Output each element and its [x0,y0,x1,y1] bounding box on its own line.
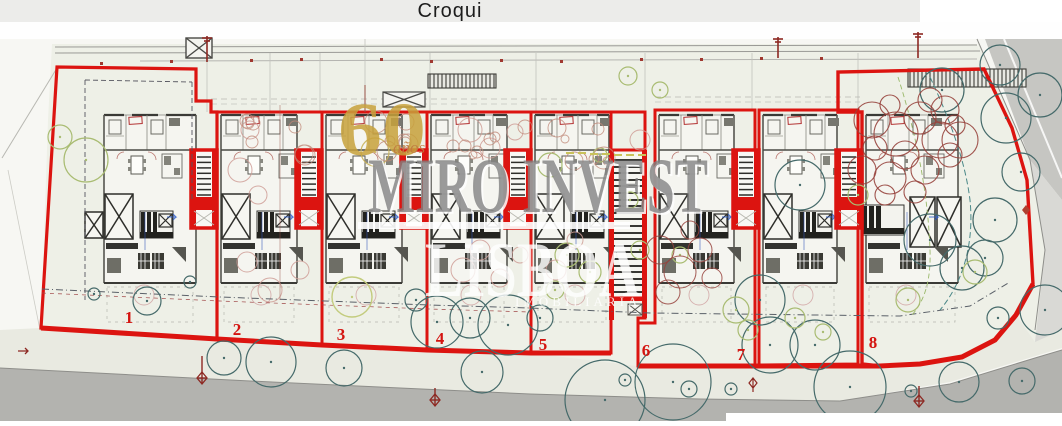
svg-text:3: 3 [337,325,346,344]
svg-text:Croqui: Croqui [418,0,483,22]
svg-text:6: 6 [642,341,651,360]
svg-text:8: 8 [869,333,878,352]
svg-text:4: 4 [436,329,445,348]
svg-text:1: 1 [125,308,134,327]
svg-text:2: 2 [233,320,242,339]
svg-text:5: 5 [539,335,548,354]
svg-text:7: 7 [737,345,746,364]
svg-text:IMOBILIARIA: IMOBILIARIA [515,294,641,309]
svg-text:MIRO INVEST: MIRO INVEST [368,142,708,229]
